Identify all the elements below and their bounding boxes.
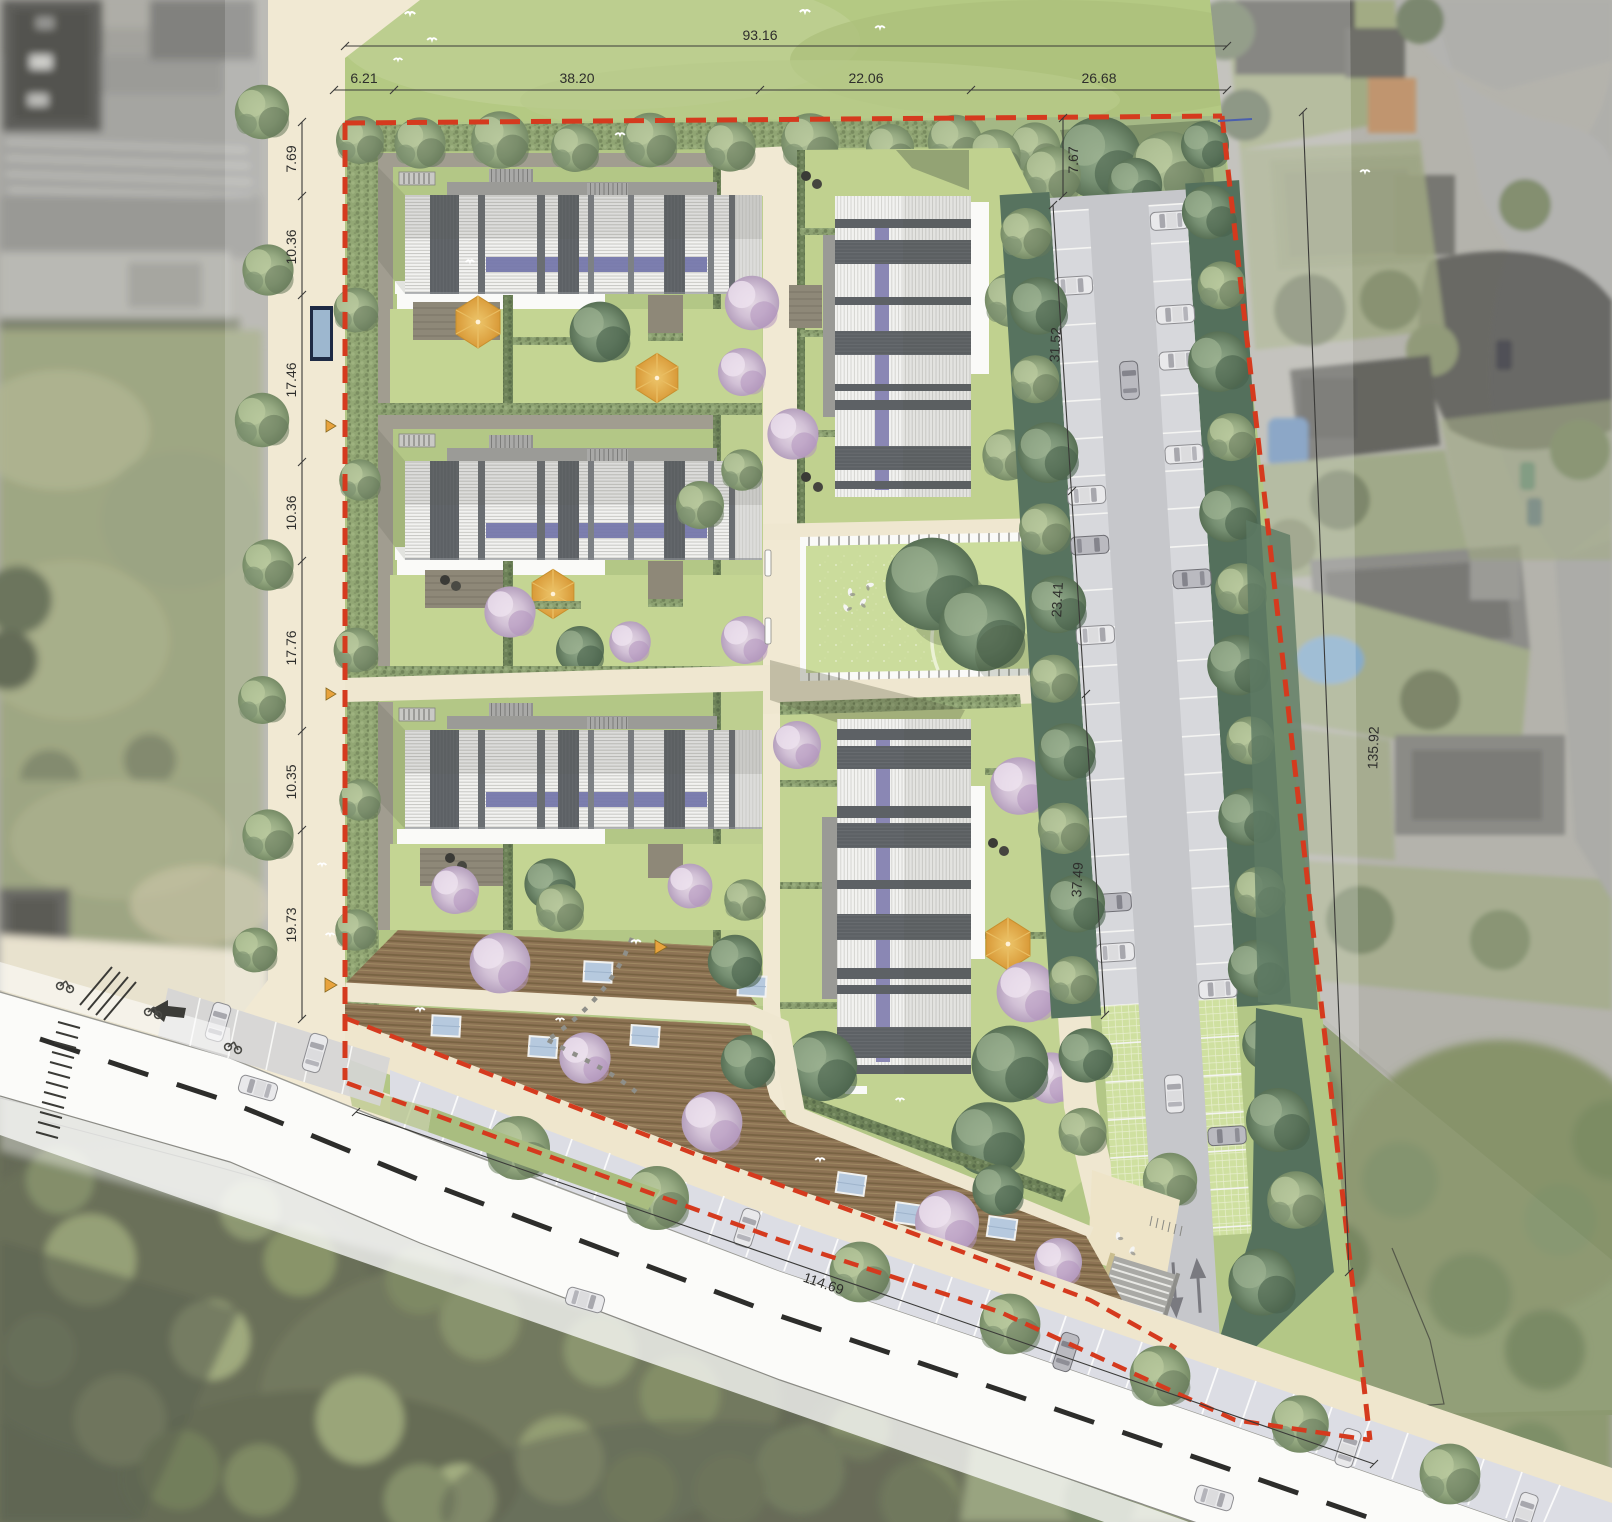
svg-text:135.92: 135.92 — [1364, 726, 1381, 770]
svg-text:10.36: 10.36 — [283, 495, 299, 530]
svg-text:31.52: 31.52 — [1046, 327, 1064, 363]
svg-text:10.36: 10.36 — [283, 229, 299, 264]
svg-text:7.67: 7.67 — [1065, 146, 1081, 173]
svg-text:38.20: 38.20 — [559, 70, 594, 86]
svg-text:6.21: 6.21 — [350, 70, 377, 86]
svg-text:17.76: 17.76 — [283, 630, 299, 665]
svg-text:26.68: 26.68 — [1081, 70, 1116, 86]
svg-text:17.46: 17.46 — [283, 362, 299, 397]
svg-text:93.16: 93.16 — [742, 27, 777, 43]
svg-text:19.73: 19.73 — [283, 907, 299, 942]
svg-text:37.49: 37.49 — [1068, 862, 1086, 898]
svg-text:22.06: 22.06 — [848, 70, 883, 86]
svg-text:7.69: 7.69 — [283, 145, 299, 172]
svg-text:10.35: 10.35 — [283, 764, 299, 799]
svg-text:23.41: 23.41 — [1048, 582, 1066, 618]
